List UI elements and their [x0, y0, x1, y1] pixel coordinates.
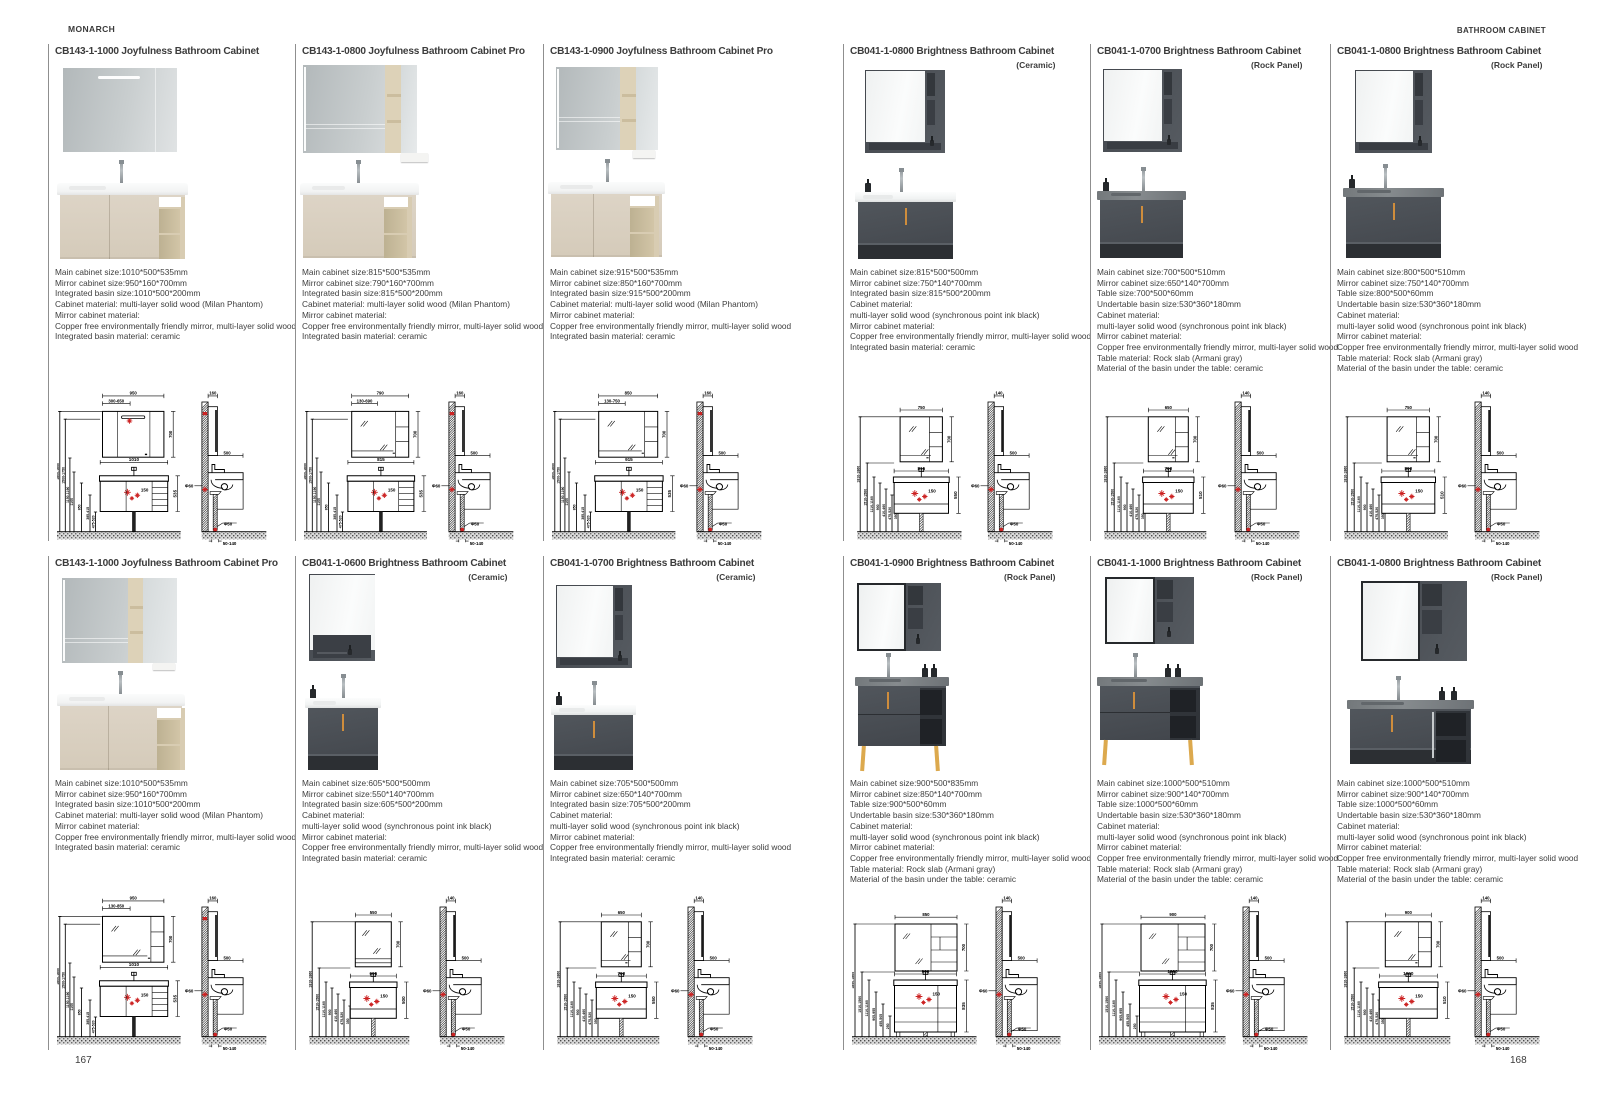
svg-text:550: 550: [369, 910, 377, 915]
svg-text:900: 900: [1169, 912, 1177, 917]
svg-text:900: 900: [876, 504, 880, 510]
svg-text:385-415: 385-415: [333, 507, 337, 520]
svg-text:510: 510: [1198, 491, 1203, 499]
svg-text:700: 700: [946, 435, 951, 443]
svg-text:250: 250: [1133, 1023, 1137, 1029]
svg-text:475-520: 475-520: [586, 515, 590, 528]
svg-text:510: 510: [1442, 996, 1447, 1004]
svg-text:140: 140: [1242, 391, 1250, 396]
svg-text:1100: 1100: [317, 498, 321, 506]
svg-text:915: 915: [625, 457, 633, 462]
svg-text:550: 550: [953, 491, 958, 499]
svg-text:700: 700: [661, 430, 666, 438]
svg-text:50-140: 50-140: [222, 541, 236, 546]
svg-text:1510-1560: 1510-1560: [1350, 489, 1354, 506]
svg-text:160: 160: [456, 391, 464, 396]
svg-text:850: 850: [77, 1009, 81, 1015]
svg-text:50-140: 50-140: [222, 1046, 236, 1051]
svg-text:Φ60: Φ60: [679, 484, 688, 489]
svg-text:410-460: 410-460: [1129, 504, 1133, 517]
svg-text:1110-1160: 1110-1160: [865, 1000, 869, 1016]
svg-text:500: 500: [1017, 955, 1025, 960]
svg-text:130-750: 130-750: [604, 398, 620, 403]
svg-text:Φ60: Φ60: [184, 484, 193, 489]
svg-text:1510-1560: 1510-1560: [1350, 994, 1354, 1011]
svg-text:Φ50: Φ50: [718, 522, 727, 527]
svg-text:1010: 1010: [128, 457, 139, 462]
svg-text:700: 700: [961, 943, 966, 951]
svg-text:50-140: 50-140: [708, 1046, 722, 1051]
svg-text:150: 150: [387, 487, 395, 492]
svg-text:700: 700: [395, 940, 400, 948]
svg-text:850: 850: [572, 504, 576, 510]
svg-text:700: 700: [167, 430, 172, 438]
svg-text:750: 750: [1404, 405, 1412, 410]
svg-text:350: 350: [1381, 513, 1385, 519]
svg-text:140: 140: [995, 391, 1003, 396]
svg-text:900: 900: [1363, 1009, 1367, 1015]
svg-text:475-520: 475-520: [1135, 507, 1139, 520]
svg-text:Φ50: Φ50: [1017, 1027, 1026, 1032]
svg-text:900: 900: [328, 1009, 332, 1015]
svg-text:1110-1160: 1110-1160: [1112, 1000, 1116, 1016]
svg-text:535: 535: [172, 489, 177, 497]
svg-text:500: 500: [1496, 955, 1504, 960]
svg-text:750: 750: [917, 405, 925, 410]
svg-text:1510-1560: 1510-1560: [1110, 489, 1114, 506]
svg-text:700: 700: [167, 935, 172, 943]
svg-text:500: 500: [223, 955, 231, 960]
svg-text:950: 950: [129, 896, 137, 901]
svg-text:700: 700: [412, 430, 417, 438]
svg-text:1800-1850: 1800-1850: [552, 463, 555, 480]
svg-text:835: 835: [961, 1002, 966, 1010]
svg-text:1110-1160: 1110-1160: [1117, 496, 1121, 512]
svg-text:500: 500: [461, 955, 469, 960]
svg-text:130-690: 130-690: [356, 398, 372, 403]
svg-text:1810-1860: 1810-1860: [1343, 971, 1347, 988]
svg-text:50-140: 50-140: [1495, 1046, 1509, 1051]
svg-text:1800-1850: 1800-1850: [304, 463, 307, 480]
svg-text:150: 150: [380, 994, 388, 999]
svg-text:140: 140: [1003, 896, 1011, 901]
svg-text:900: 900: [1123, 504, 1127, 510]
svg-text:410-460: 410-460: [334, 1009, 338, 1022]
svg-text:410-460: 410-460: [882, 504, 886, 517]
svg-text:900: 900: [1404, 910, 1412, 915]
svg-text:1500-1750: 1500-1750: [308, 467, 312, 484]
svg-text:500: 500: [223, 450, 231, 455]
svg-text:140: 140: [695, 896, 703, 901]
svg-text:385-415: 385-415: [581, 507, 585, 520]
svg-text:700: 700: [1209, 943, 1214, 951]
svg-text:Φ50: Φ50: [223, 1027, 232, 1032]
svg-text:Φ60: Φ60: [1226, 989, 1235, 994]
svg-text:455-505: 455-505: [1126, 1014, 1130, 1027]
svg-text:1810-1860: 1810-1860: [856, 466, 860, 483]
svg-text:535: 535: [667, 489, 672, 497]
svg-text:550: 550: [651, 996, 656, 1004]
svg-text:50-140: 50-140: [1008, 541, 1022, 546]
svg-text:150: 150: [628, 994, 636, 999]
svg-text:140: 140: [1482, 896, 1490, 901]
svg-text:1510-1560: 1510-1560: [563, 994, 567, 1011]
svg-text:Φ50: Φ50: [461, 1027, 470, 1032]
svg-text:Φ60: Φ60: [1458, 989, 1467, 994]
svg-text:1810-1860: 1810-1860: [308, 971, 312, 988]
svg-text:Φ50: Φ50: [223, 522, 232, 527]
svg-text:1110-1160: 1110-1160: [870, 496, 874, 512]
svg-text:475-520: 475-520: [888, 507, 892, 520]
svg-text:1100: 1100: [565, 498, 569, 506]
svg-text:500: 500: [1009, 450, 1017, 455]
svg-text:1810-1860: 1810-1860: [556, 971, 560, 988]
svg-text:150: 150: [932, 992, 940, 997]
svg-text:50-140: 50-140: [460, 1046, 474, 1051]
svg-text:150: 150: [1179, 992, 1187, 997]
svg-text:500: 500: [470, 450, 478, 455]
svg-text:250: 250: [886, 1023, 890, 1029]
svg-text:130-850: 130-850: [108, 903, 124, 908]
svg-text:475-520: 475-520: [338, 515, 342, 528]
svg-text:50-140: 50-140: [1255, 541, 1269, 546]
svg-text:535: 535: [418, 489, 423, 497]
svg-text:475-520: 475-520: [1375, 1012, 1379, 1025]
svg-text:350: 350: [1381, 1018, 1385, 1024]
svg-text:1510-1560: 1510-1560: [315, 994, 319, 1011]
svg-text:535: 535: [172, 994, 177, 1002]
svg-text:1850-1865: 1850-1865: [852, 972, 855, 989]
svg-text:150: 150: [140, 487, 148, 492]
svg-text:Φ60: Φ60: [979, 989, 988, 994]
svg-text:160: 160: [209, 391, 217, 396]
svg-text:835: 835: [1210, 1002, 1215, 1010]
svg-text:500: 500: [1264, 955, 1272, 960]
svg-text:140: 140: [1250, 896, 1258, 901]
svg-text:50-140: 50-140: [1495, 541, 1509, 546]
svg-text:1500-1750: 1500-1750: [556, 467, 560, 484]
svg-text:700: 700: [1192, 435, 1197, 443]
svg-text:Φ50: Φ50: [1009, 522, 1018, 527]
svg-text:410-460: 410-460: [1369, 1009, 1373, 1022]
svg-text:500: 500: [401, 996, 406, 1004]
svg-text:1510-1560: 1510-1560: [1105, 996, 1109, 1013]
svg-text:160: 160: [704, 391, 712, 396]
svg-text:1810-1860: 1810-1860: [1343, 466, 1347, 483]
svg-text:475-520: 475-520: [340, 1012, 344, 1025]
svg-text:Φ50: Φ50: [709, 1027, 718, 1032]
svg-text:850: 850: [77, 504, 81, 510]
svg-text:350: 350: [346, 1018, 350, 1024]
svg-text:50-140: 50-140: [1263, 1046, 1277, 1051]
svg-text:500: 500: [718, 450, 726, 455]
svg-text:140: 140: [1482, 391, 1490, 396]
svg-text:1800-1850: 1800-1850: [57, 968, 60, 985]
svg-text:1510-1560: 1510-1560: [863, 489, 867, 506]
svg-text:700: 700: [1435, 940, 1440, 948]
svg-text:50-140: 50-140: [1016, 1046, 1030, 1051]
svg-text:50-140: 50-140: [717, 541, 731, 546]
svg-text:Φ60: Φ60: [671, 989, 680, 994]
svg-text:Φ50: Φ50: [1496, 522, 1505, 527]
svg-text:Φ50: Φ50: [1496, 1027, 1505, 1032]
svg-text:905-955: 905-955: [1119, 1008, 1123, 1021]
svg-text:410-460: 410-460: [1369, 504, 1373, 517]
svg-text:160: 160: [209, 896, 217, 901]
svg-text:1500-1750: 1500-1750: [61, 467, 65, 484]
svg-text:1800-1850: 1800-1850: [57, 463, 60, 480]
svg-text:1100: 1100: [70, 498, 74, 506]
svg-text:815: 815: [377, 457, 385, 462]
svg-text:1110-1160: 1110-1160: [570, 1001, 574, 1017]
svg-text:1810-1860: 1810-1860: [1103, 466, 1107, 483]
svg-text:475-520: 475-520: [91, 1020, 95, 1033]
svg-text:140: 140: [447, 896, 455, 901]
svg-text:475-520: 475-520: [91, 515, 95, 528]
svg-text:150: 150: [1175, 489, 1183, 494]
svg-text:905-955: 905-955: [872, 1008, 876, 1021]
svg-text:700: 700: [645, 940, 650, 948]
svg-text:1110-1160: 1110-1160: [1357, 1001, 1361, 1017]
svg-text:650: 650: [617, 910, 625, 915]
svg-text:Φ50: Φ50: [1256, 522, 1265, 527]
svg-text:350: 350: [894, 513, 898, 519]
svg-text:350: 350: [1141, 513, 1145, 519]
svg-text:500: 500: [709, 955, 717, 960]
svg-text:300-650: 300-650: [108, 398, 124, 403]
svg-text:Φ60: Φ60: [971, 484, 980, 489]
svg-text:385-415: 385-415: [86, 1012, 90, 1025]
svg-text:650: 650: [1164, 405, 1172, 410]
svg-text:Φ60: Φ60: [1458, 484, 1467, 489]
svg-text:50-140: 50-140: [469, 541, 483, 546]
svg-text:850: 850: [624, 391, 632, 396]
svg-text:475-520: 475-520: [1375, 507, 1379, 520]
svg-text:385-415: 385-415: [86, 507, 90, 520]
svg-text:1110-1160: 1110-1160: [1357, 496, 1361, 512]
svg-text:1850-1865: 1850-1865: [1099, 972, 1102, 989]
svg-text:410-460: 410-460: [582, 1009, 586, 1022]
svg-text:150: 150: [140, 992, 148, 997]
svg-text:790: 790: [376, 391, 384, 396]
svg-text:Φ60: Φ60: [1218, 484, 1227, 489]
svg-text:150: 150: [635, 487, 643, 492]
svg-text:475-520: 475-520: [588, 1012, 592, 1025]
svg-text:1510-1560: 1510-1560: [858, 996, 862, 1013]
svg-text:350: 350: [594, 1018, 598, 1024]
svg-text:950: 950: [129, 391, 137, 396]
svg-text:150: 150: [1415, 994, 1423, 999]
svg-text:850: 850: [922, 912, 930, 917]
svg-text:1500-1750: 1500-1750: [61, 972, 65, 989]
svg-text:Φ50: Φ50: [470, 522, 479, 527]
svg-text:900: 900: [1363, 504, 1367, 510]
svg-text:150: 150: [1415, 489, 1423, 494]
svg-text:850: 850: [324, 504, 328, 510]
svg-text:Φ50: Φ50: [1264, 1027, 1273, 1032]
svg-text:Φ60: Φ60: [184, 989, 193, 994]
svg-text:700: 700: [1433, 435, 1438, 443]
svg-text:510: 510: [1439, 491, 1444, 499]
svg-text:500: 500: [1496, 450, 1504, 455]
svg-text:1100: 1100: [70, 1003, 74, 1011]
svg-text:455-505: 455-505: [879, 1014, 883, 1027]
svg-text:900: 900: [576, 1009, 580, 1015]
svg-text:1110-1160: 1110-1160: [322, 1001, 326, 1017]
svg-text:Φ60: Φ60: [423, 989, 432, 994]
svg-text:150: 150: [928, 489, 936, 494]
svg-text:1010: 1010: [128, 962, 139, 967]
svg-text:Φ60: Φ60: [431, 484, 440, 489]
svg-text:500: 500: [1256, 450, 1264, 455]
